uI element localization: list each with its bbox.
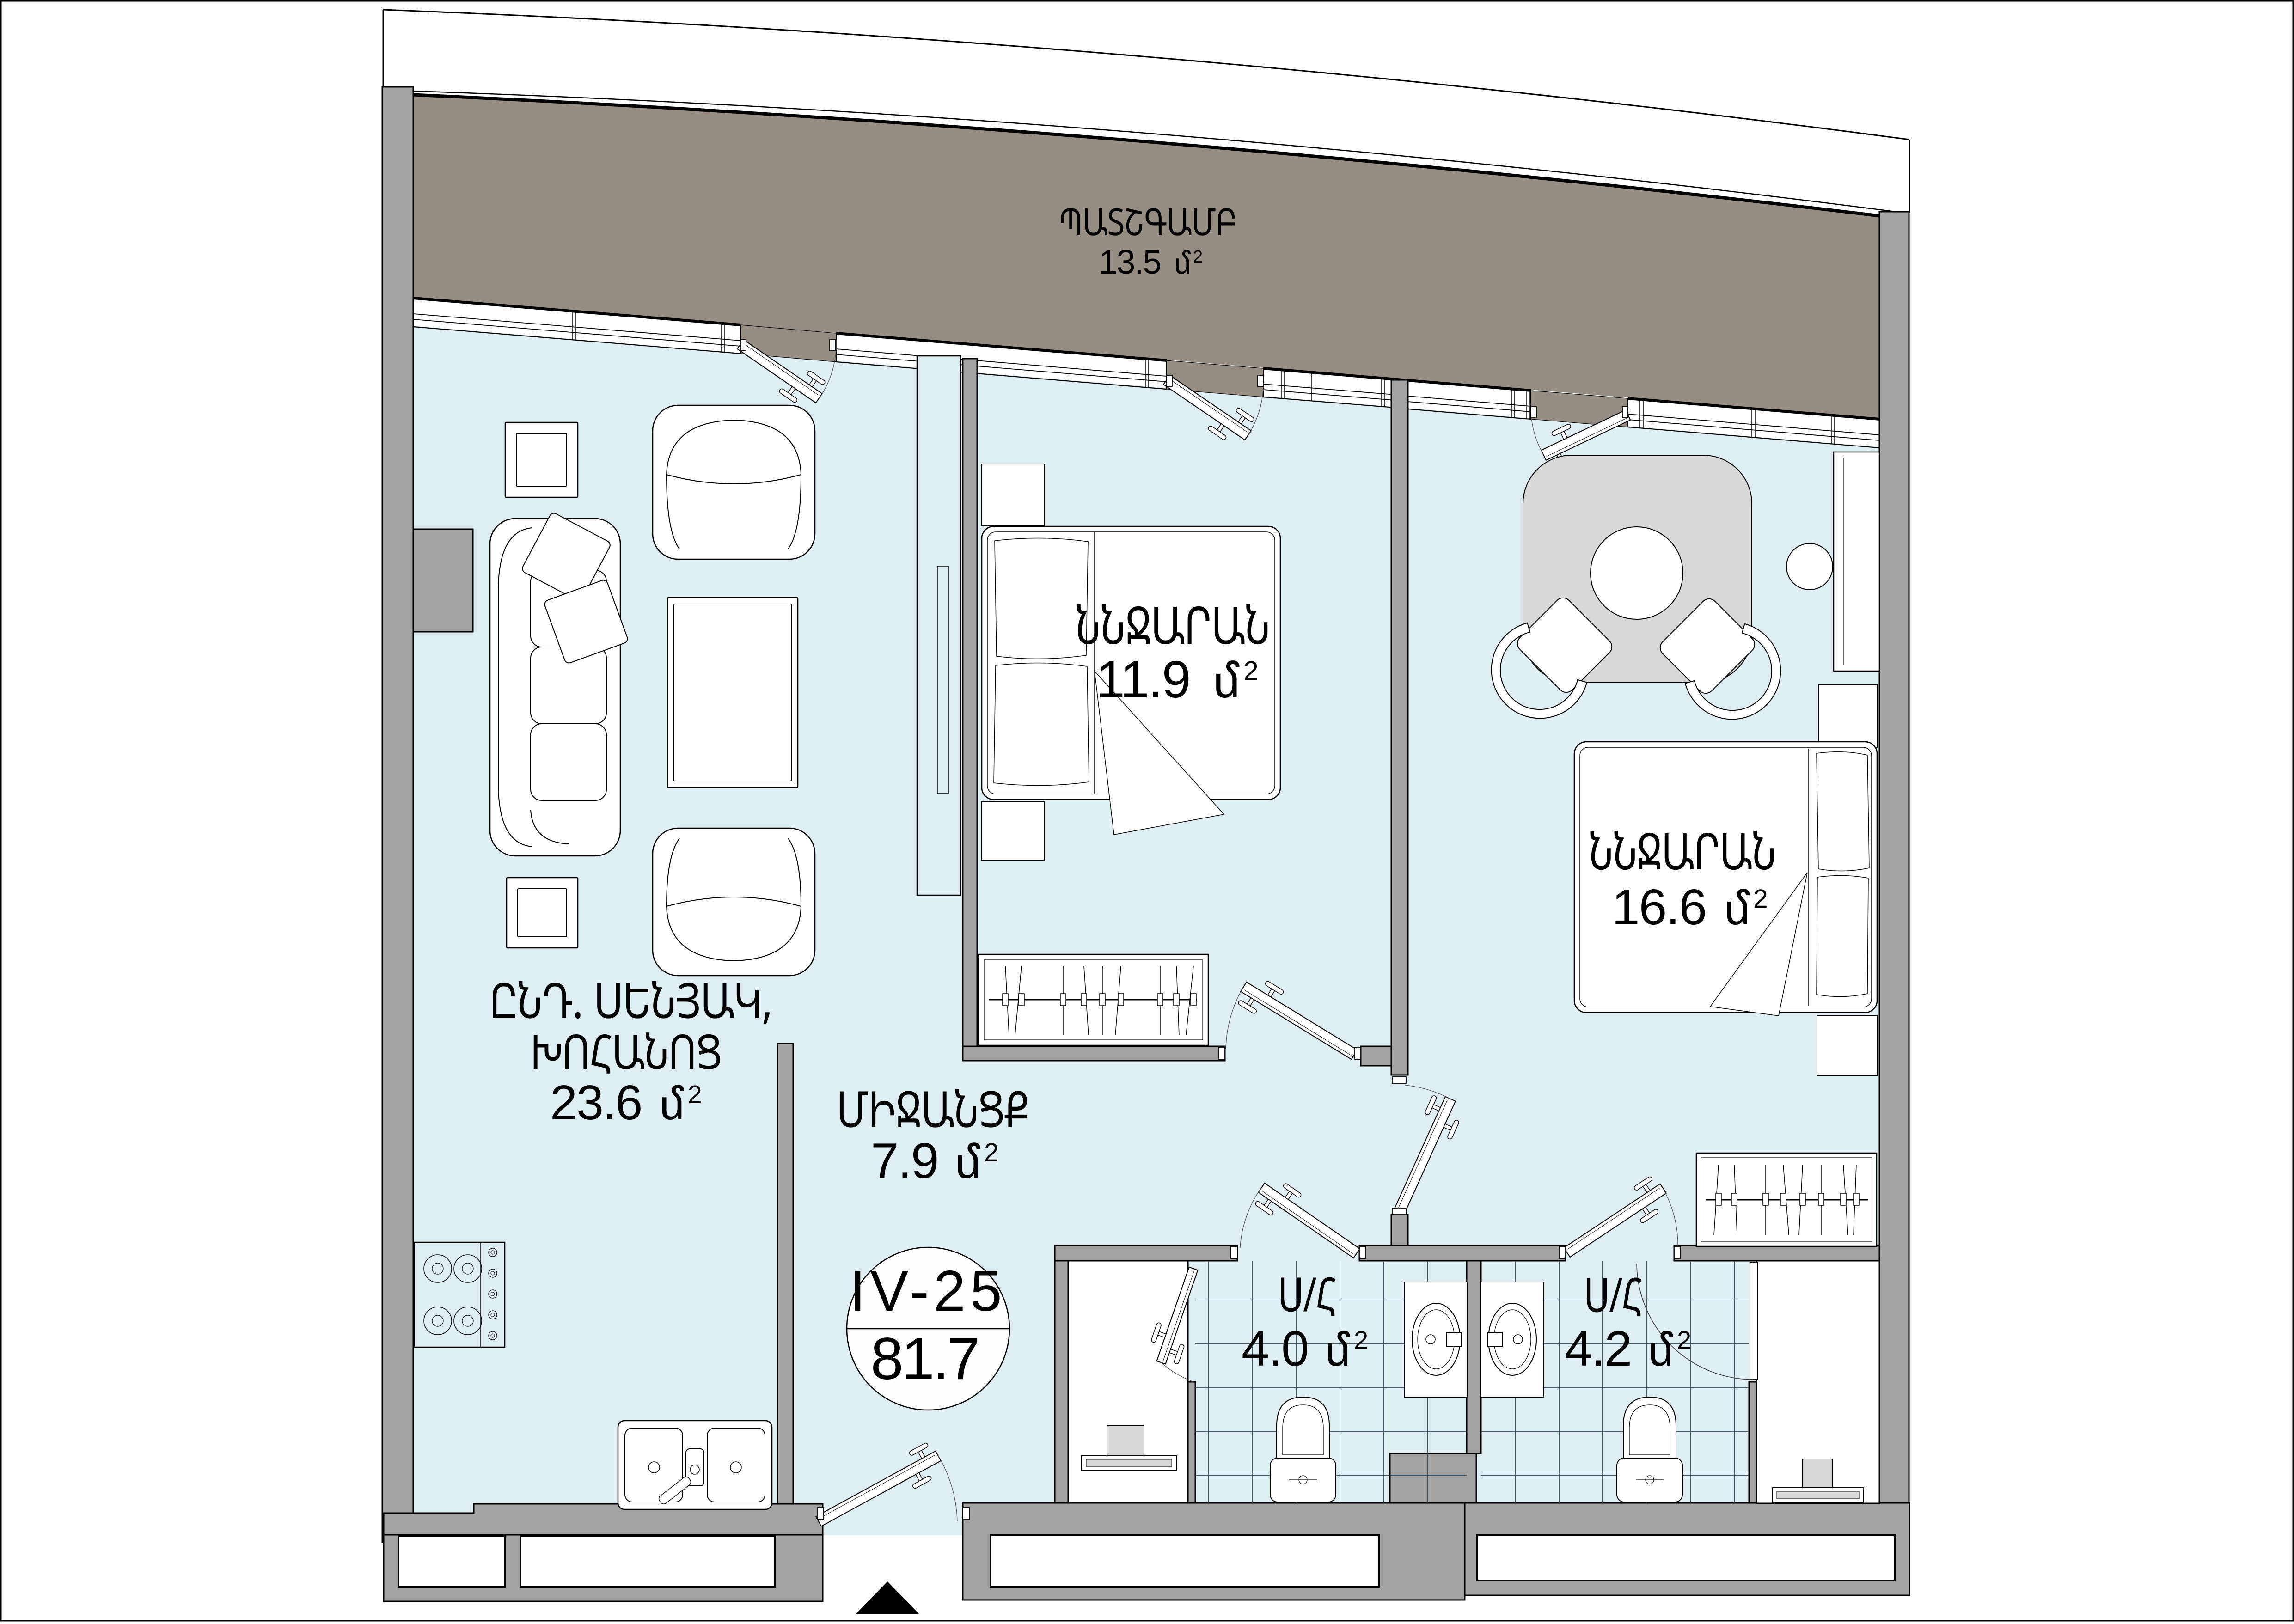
svg-text:7.9: 7.9 — [871, 1133, 938, 1189]
svg-text:23.6: 23.6 — [550, 1075, 642, 1130]
svg-text:81.7: 81.7 — [870, 1326, 978, 1392]
svg-text:2: 2 — [1354, 1325, 1368, 1355]
svg-text:4.0: 4.0 — [1242, 1320, 1308, 1376]
svg-text:16.6: 16.6 — [1612, 879, 1706, 935]
svg-text:13.5: 13.5 — [1099, 244, 1161, 281]
svg-text:4.2: 4.2 — [1565, 1320, 1631, 1376]
svg-text:2: 2 — [1677, 1325, 1691, 1355]
svg-text:2: 2 — [1193, 247, 1203, 267]
svg-text:2: 2 — [984, 1138, 999, 1167]
svg-text:IV-25: IV-25 — [850, 1259, 1007, 1323]
svg-text:11.9: 11.9 — [1096, 650, 1190, 708]
svg-text:2: 2 — [688, 1080, 702, 1109]
svg-text:2: 2 — [1753, 884, 1768, 914]
svg-text:2: 2 — [1243, 656, 1259, 686]
